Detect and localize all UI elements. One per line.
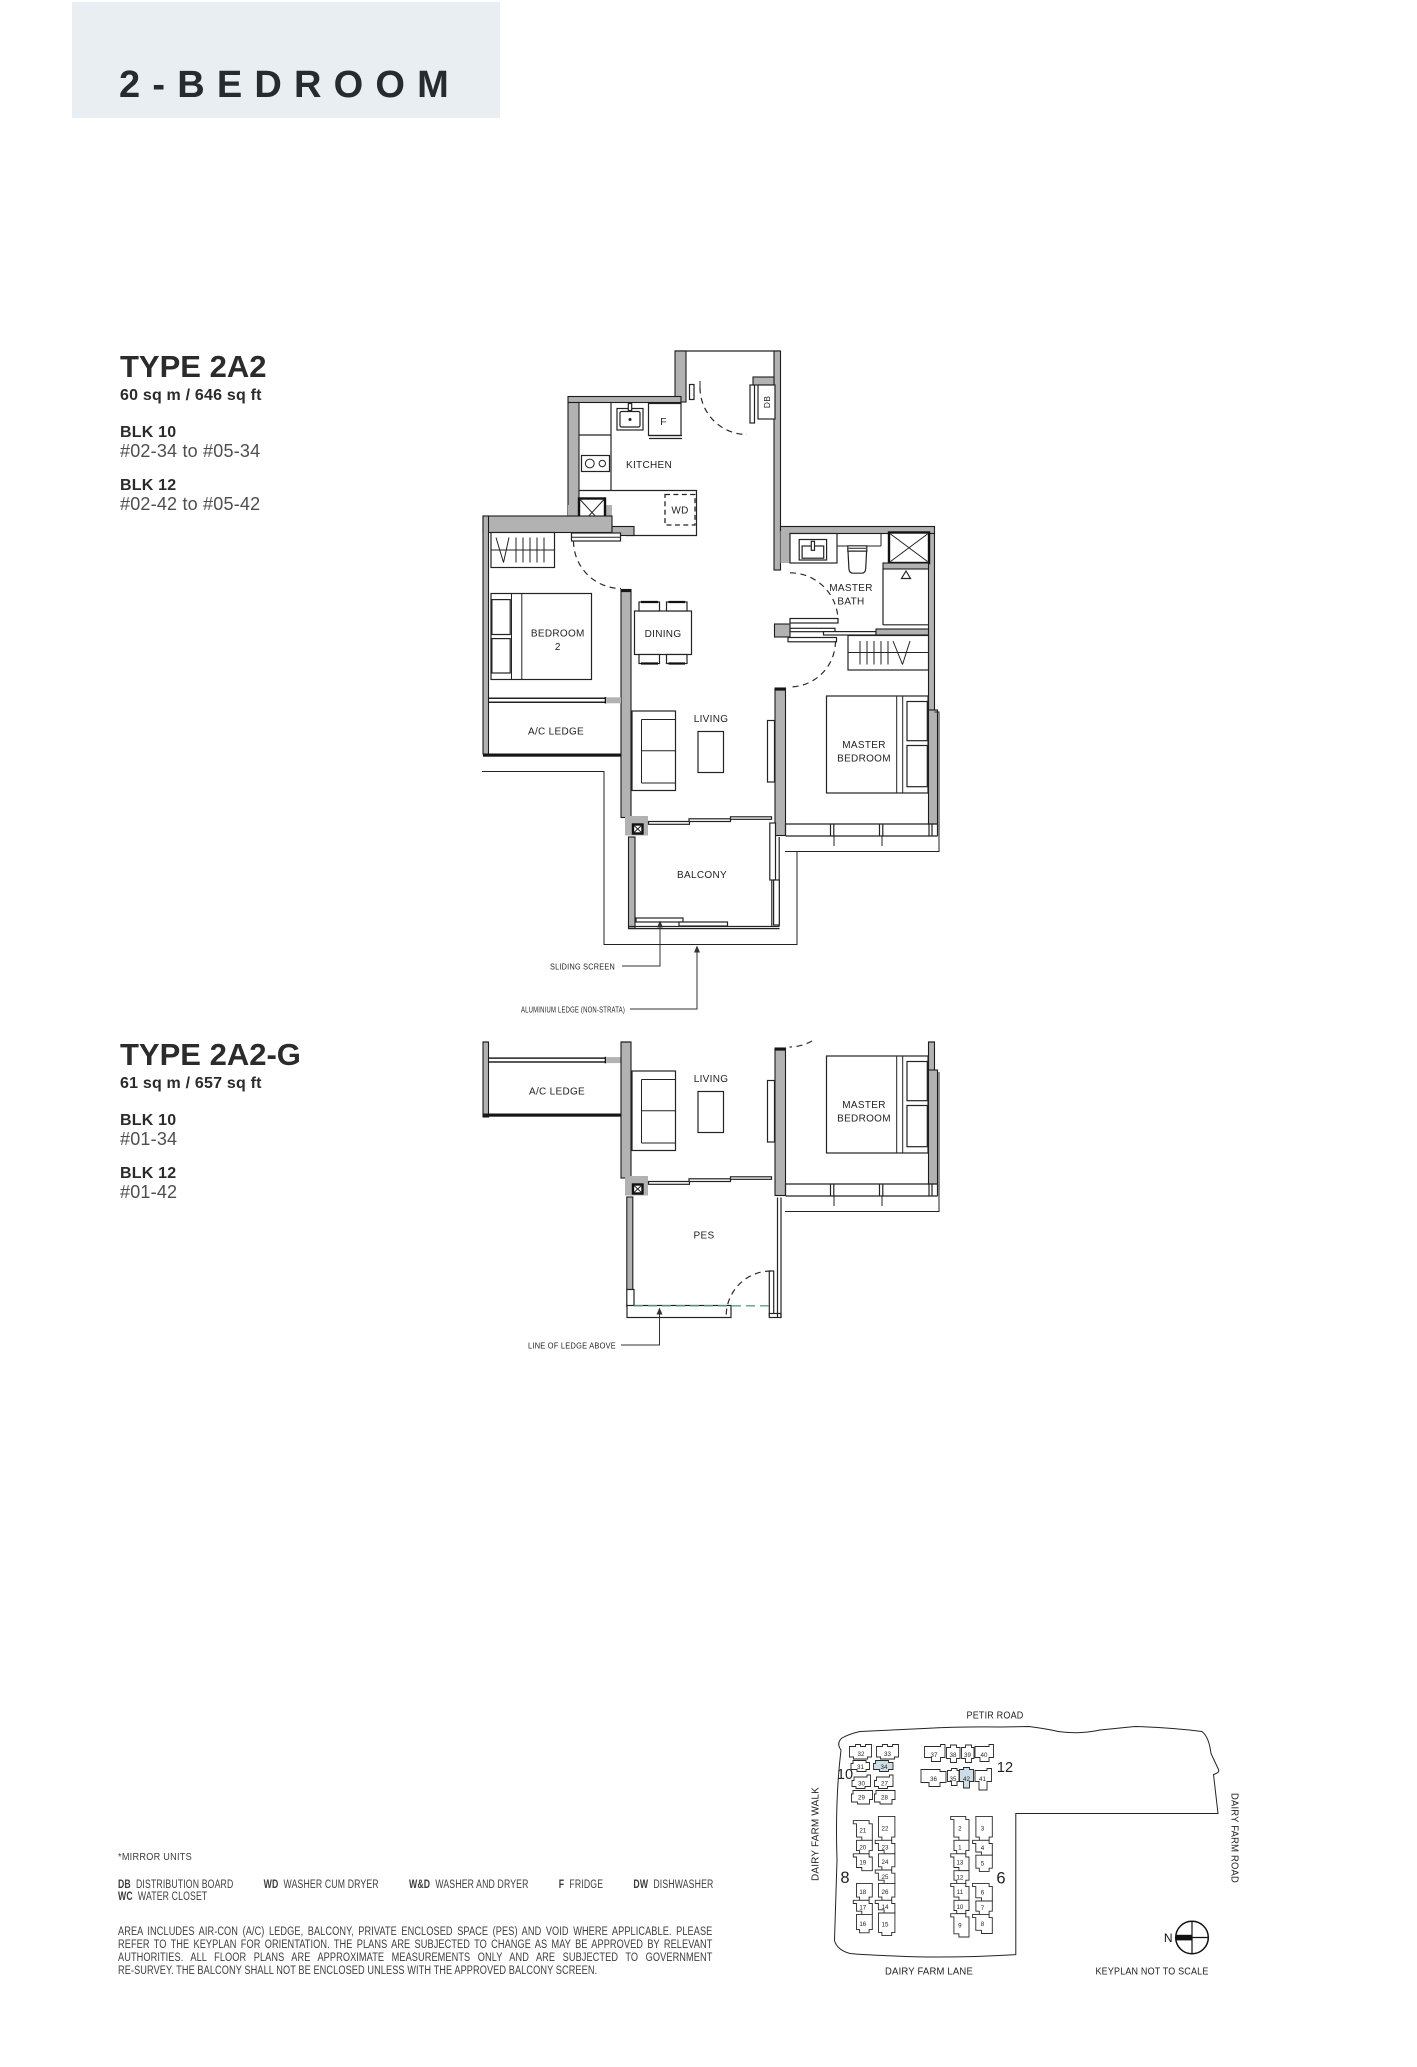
svg-text:16: 16	[859, 1921, 866, 1928]
svg-text:DAIRY FARM WALK: DAIRY FARM WALK	[811, 1787, 822, 1881]
svg-text:33: 33	[884, 1751, 891, 1758]
svg-text:2: 2	[555, 642, 561, 653]
svg-text:22: 22	[882, 1826, 889, 1833]
svg-text:6: 6	[981, 1890, 985, 1897]
svg-text:PES: PES	[694, 1231, 715, 1242]
svg-text:27: 27	[881, 1781, 888, 1788]
svg-text:17: 17	[859, 1905, 866, 1912]
svg-text:24: 24	[882, 1859, 889, 1866]
svg-text:35: 35	[950, 1776, 957, 1783]
svg-text:DINING: DINING	[645, 629, 682, 640]
svg-text:12: 12	[956, 1874, 963, 1881]
svg-text:BEDROOM: BEDROOM	[531, 629, 585, 640]
svg-text:39: 39	[964, 1752, 971, 1759]
svg-text:32: 32	[858, 1751, 865, 1758]
svg-text:8: 8	[840, 1869, 849, 1887]
svg-text:36: 36	[930, 1776, 937, 1783]
svg-text:30: 30	[858, 1781, 865, 1788]
svg-text:2: 2	[958, 1826, 962, 1833]
svg-text:3: 3	[981, 1826, 985, 1833]
svg-text:11: 11	[957, 1889, 964, 1896]
svg-text:DAIRY FARM LANE: DAIRY FARM LANE	[885, 1967, 973, 1978]
svg-text:41: 41	[979, 1776, 986, 1783]
svg-text:9: 9	[958, 1923, 962, 1930]
svg-text:8: 8	[981, 1921, 985, 1928]
svg-text:WD: WD	[671, 506, 688, 517]
svg-text:5: 5	[981, 1861, 985, 1868]
svg-text:KEYPLAN NOT TO SCALE: KEYPLAN NOT TO SCALE	[1096, 1967, 1209, 1978]
svg-text:34: 34	[881, 1764, 888, 1771]
svg-text:N: N	[1164, 1931, 1173, 1945]
svg-text:38: 38	[950, 1752, 957, 1759]
svg-text:6: 6	[996, 1870, 1005, 1888]
svg-text:18: 18	[859, 1889, 866, 1896]
svg-text:15: 15	[882, 1922, 889, 1929]
svg-text:40: 40	[981, 1752, 988, 1759]
svg-text:26: 26	[882, 1889, 889, 1896]
svg-text:42: 42	[963, 1776, 970, 1783]
svg-text:SLIDING SCREEN: SLIDING SCREEN	[550, 962, 615, 972]
svg-text:MASTER: MASTER	[842, 1100, 885, 1111]
svg-text:14: 14	[882, 1904, 889, 1911]
svg-text:MASTER: MASTER	[842, 740, 885, 751]
svg-text:A/C LEDGE: A/C LEDGE	[528, 727, 584, 738]
svg-text:31: 31	[857, 1764, 864, 1771]
svg-text:7: 7	[981, 1905, 985, 1912]
svg-text:21: 21	[859, 1828, 866, 1835]
svg-text:DB: DB	[762, 396, 772, 409]
svg-text:DAIRY FARM ROAD: DAIRY FARM ROAD	[1229, 1793, 1240, 1883]
svg-text:BEDROOM: BEDROOM	[837, 1114, 891, 1125]
svg-text:13: 13	[956, 1860, 963, 1867]
svg-text:23: 23	[882, 1844, 889, 1851]
svg-text:A/C LEDGE: A/C LEDGE	[529, 1087, 585, 1098]
svg-text:1: 1	[958, 1844, 962, 1851]
svg-text:4: 4	[981, 1845, 985, 1852]
svg-text:37: 37	[931, 1752, 938, 1759]
svg-text:BEDROOM: BEDROOM	[837, 754, 891, 765]
svg-text:19: 19	[859, 1860, 866, 1867]
svg-text:KITCHEN: KITCHEN	[626, 460, 672, 471]
svg-text:PETIR ROAD: PETIR ROAD	[967, 1711, 1024, 1722]
svg-text:LIVING: LIVING	[694, 1074, 729, 1085]
svg-text:MASTER: MASTER	[829, 583, 872, 594]
svg-text:LIVING: LIVING	[694, 714, 729, 725]
svg-text:28: 28	[881, 1795, 888, 1802]
svg-text:12: 12	[997, 1760, 1013, 1776]
svg-text:29: 29	[858, 1795, 865, 1802]
svg-text:LINE OF LEDGE ABOVE: LINE OF LEDGE ABOVE	[528, 1341, 616, 1351]
svg-text:ALUMINIUM LEDGE (NON-STRATA): ALUMINIUM LEDGE (NON-STRATA)	[521, 1005, 625, 1015]
svg-text:F: F	[660, 417, 666, 428]
svg-text:10: 10	[837, 1767, 853, 1783]
svg-text:20: 20	[859, 1844, 866, 1851]
svg-text:10: 10	[956, 1904, 963, 1911]
svg-text:25: 25	[882, 1874, 889, 1881]
svg-text:BALCONY: BALCONY	[677, 870, 727, 881]
svg-text:BATH: BATH	[837, 597, 864, 608]
